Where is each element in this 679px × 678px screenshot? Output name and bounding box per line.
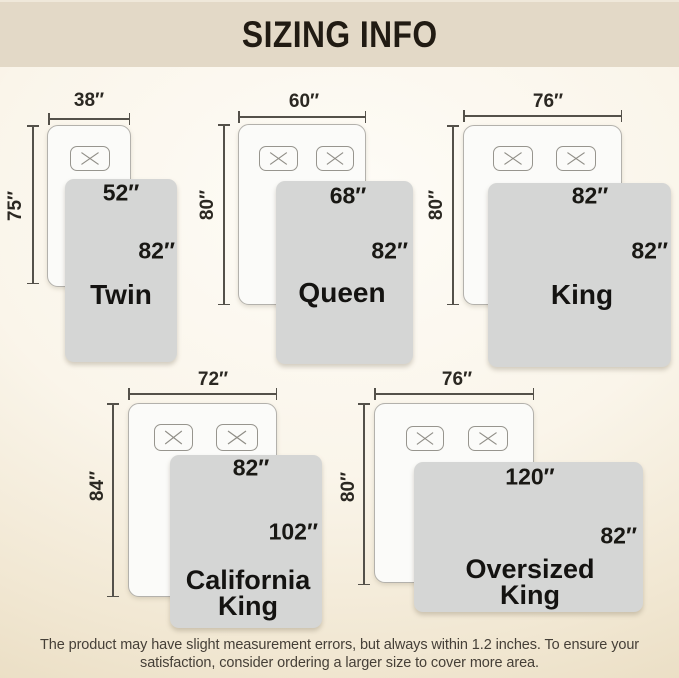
oversized-king-size-name: Oversized King — [465, 556, 594, 608]
header-banner: SIZING INFO — [0, 0, 679, 67]
twin-blanket-length-label: 82″ — [138, 238, 175, 265]
twin-width-dimension-line — [48, 118, 130, 120]
queen-length-dimension-line — [223, 124, 225, 305]
king-blanket-length-label: 82″ — [631, 238, 668, 265]
king-size-name: King — [551, 282, 613, 308]
pillow-icon — [154, 424, 193, 451]
california-king-mattress-width-label: 72″ — [198, 369, 228, 391]
pillow-icon — [406, 426, 444, 451]
oversized-king-mattress-length-label: 80″ — [338, 472, 360, 502]
king-width-dimension-line — [463, 115, 622, 117]
twin-blanket: 52″ 82″ Twin — [65, 179, 177, 362]
queen-blanket-length-label: 82″ — [371, 238, 408, 265]
pillow-icon — [259, 146, 298, 171]
king-length-dimension-line — [452, 125, 454, 305]
disclaimer-line-2: satisfaction, consider ordering a larger… — [0, 654, 679, 672]
page-title: SIZING INFO — [242, 14, 438, 56]
oversized-king-length-dimension-line — [363, 403, 365, 585]
oversized-king-blanket-width-label: 120″ — [505, 464, 554, 491]
pillow-icon — [216, 424, 258, 451]
california-king-blanket-width-label: 82″ — [233, 455, 270, 482]
disclaimer-text: The product may have slight measurement … — [0, 636, 679, 672]
california-king-blanket-length-label: 102″ — [269, 519, 318, 546]
california-king-blanket: 82″ 102″ California King — [170, 455, 322, 628]
queen-mattress-width-label: 60″ — [289, 91, 319, 113]
twin-length-dimension-line — [32, 125, 34, 284]
pillow-icon — [70, 146, 110, 171]
twin-mattress-length-label: 75″ — [5, 191, 27, 221]
california-king-mattress-length-label: 84″ — [87, 471, 109, 501]
king-blanket: 82″ 82″ King — [488, 183, 671, 367]
queen-size-name: Queen — [298, 280, 385, 306]
disclaimer-line-1: The product may have slight measurement … — [0, 636, 679, 654]
pillow-icon — [556, 146, 596, 171]
king-blanket-width-label: 82″ — [572, 183, 609, 210]
queen-mattress-length-label: 80″ — [197, 190, 219, 220]
twin-size-name: Twin — [90, 282, 152, 308]
oversized-king-width-dimension-line — [374, 393, 534, 395]
oversized-king-mattress-width-label: 76″ — [442, 369, 472, 391]
queen-width-dimension-line — [238, 116, 366, 118]
pillow-icon — [316, 146, 354, 171]
sizing-info-infographic: SIZING INFO 38″ 75″ 52″ 82″ Twin 60″ 80″ — [0, 0, 679, 678]
king-mattress-length-label: 80″ — [426, 190, 448, 220]
king-mattress-width-label: 76″ — [533, 91, 563, 113]
california-king-length-dimension-line — [112, 403, 114, 597]
twin-blanket-width-label: 52″ — [103, 180, 140, 207]
pillow-icon — [468, 426, 508, 451]
twin-mattress-width-label: 38″ — [74, 90, 104, 112]
queen-blanket: 68″ 82″ Queen — [276, 181, 413, 364]
queen-blanket-width-label: 68″ — [330, 183, 367, 210]
oversized-king-blanket: 120″ 82″ Oversized King — [414, 462, 643, 612]
california-king-size-name: California King — [186, 567, 311, 619]
california-king-width-dimension-line — [128, 393, 277, 395]
oversized-king-blanket-length-label: 82″ — [600, 523, 637, 550]
pillow-icon — [493, 146, 533, 171]
